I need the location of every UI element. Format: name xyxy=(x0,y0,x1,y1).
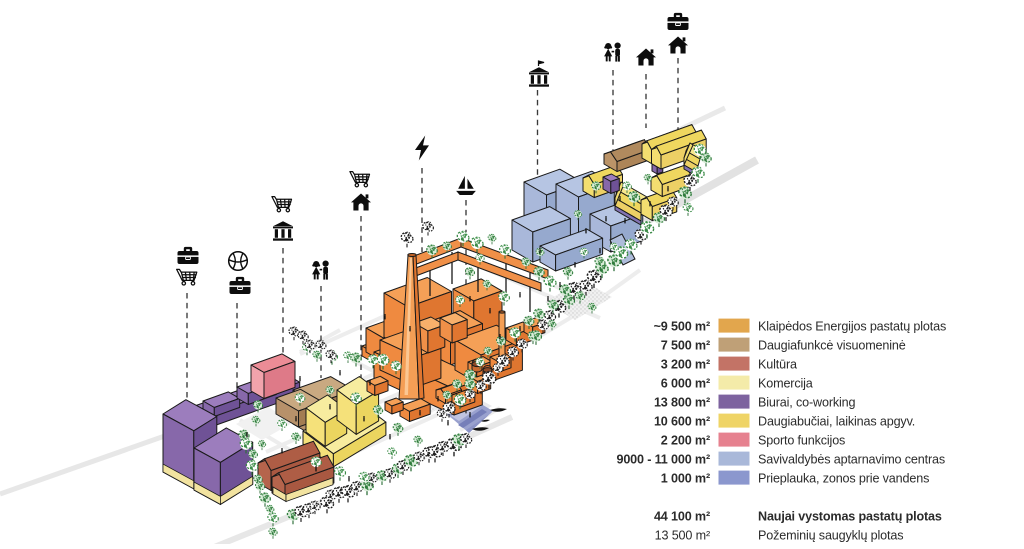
svg-text:9000 - 11 000 m²: 9000 - 11 000 m² xyxy=(616,452,710,466)
svg-text:Požeminių saugyklų plotas: Požeminių saugyklų plotas xyxy=(758,528,903,542)
svg-text:Naujai vystomas pastatų plotas: Naujai vystomas pastatų plotas xyxy=(758,510,942,524)
svg-text:44 100 m²: 44 100 m² xyxy=(654,510,710,524)
svg-text:Daugiafunkcė visuomeninė: Daugiafunkcė visuomeninė xyxy=(758,338,906,352)
svg-text:Savivaldybės aptarnavimo centr: Savivaldybės aptarnavimo centras xyxy=(758,452,945,466)
svg-text:2 200 m²: 2 200 m² xyxy=(661,433,710,447)
svg-text:Biurai, co-working: Biurai, co-working xyxy=(758,395,856,409)
svg-text:10 600 m²: 10 600 m² xyxy=(654,414,710,428)
svg-text:Prieplauka, zonos prie vandens: Prieplauka, zonos prie vandens xyxy=(758,471,929,485)
svg-text:13 500 m²: 13 500 m² xyxy=(655,528,710,542)
svg-text:7 500 m²: 7 500 m² xyxy=(661,338,710,352)
svg-text:1 000 m²: 1 000 m² xyxy=(661,471,710,485)
svg-text:Daugiabučiai, laikinas apgyv.: Daugiabučiai, laikinas apgyv. xyxy=(758,414,915,428)
svg-text:Komercija: Komercija xyxy=(758,376,813,390)
svg-text:Klaipėdos Energijos pastatų pl: Klaipėdos Energijos pastatų plotas xyxy=(758,319,946,333)
svg-text:Sporto funkcijos: Sporto funkcijos xyxy=(758,433,845,447)
svg-text:6 000 m²: 6 000 m² xyxy=(661,376,710,390)
svg-text:13 800 m²: 13 800 m² xyxy=(654,395,710,409)
svg-text:~9 500 m²: ~9 500 m² xyxy=(654,319,710,333)
svg-text:3 200 m²: 3 200 m² xyxy=(661,357,710,371)
svg-text:Kultūra: Kultūra xyxy=(758,357,797,371)
